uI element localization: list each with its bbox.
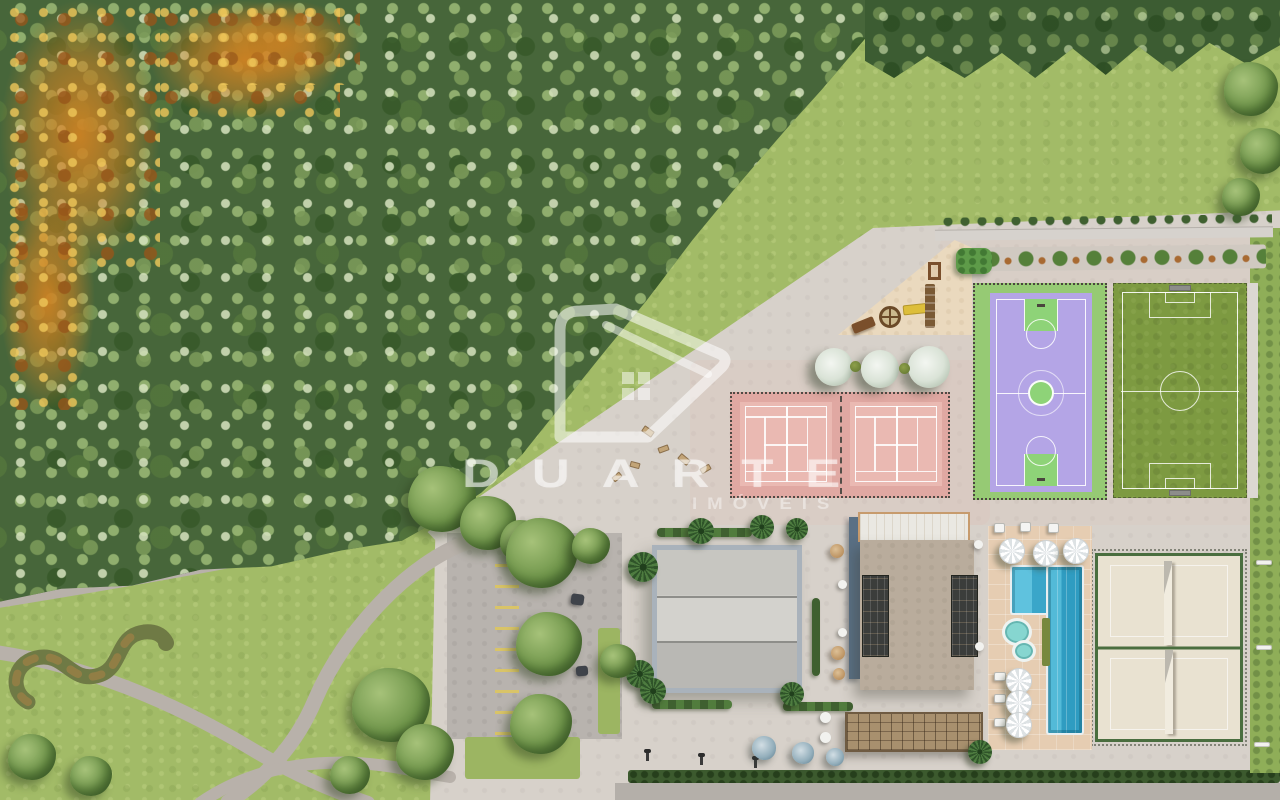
white-flowering-tree bbox=[861, 350, 899, 388]
sun-lounger bbox=[1048, 523, 1059, 533]
white-flowering-tree bbox=[815, 348, 853, 386]
playground-carousel bbox=[879, 306, 901, 328]
goal-box-top bbox=[1165, 292, 1195, 303]
kids-pool bbox=[1012, 640, 1036, 662]
sun-lounger bbox=[994, 694, 1006, 703]
tan-parasol bbox=[831, 646, 845, 660]
basketball-surface bbox=[990, 293, 1092, 492]
wood-pergola bbox=[845, 712, 983, 752]
sun-lounger bbox=[994, 718, 1006, 727]
divider-fence bbox=[840, 396, 842, 494]
pool-umbrella bbox=[1063, 538, 1089, 564]
palm-tree bbox=[640, 678, 666, 704]
pool-umbrella bbox=[1033, 540, 1059, 566]
palm-tree bbox=[628, 552, 658, 582]
beach-net-top bbox=[1164, 561, 1172, 645]
pool-arm bbox=[1010, 565, 1048, 615]
glass-pergola bbox=[862, 575, 889, 657]
autumn-trees-patch bbox=[210, 0, 360, 85]
hoop-bottom bbox=[1037, 478, 1045, 481]
palm-tree bbox=[786, 518, 808, 540]
ornamental-tree bbox=[752, 736, 776, 760]
net-line bbox=[896, 406, 898, 482]
playground-climber bbox=[956, 248, 992, 274]
palm-tree bbox=[780, 682, 804, 706]
autumn-trees-patch bbox=[0, 190, 95, 410]
tennis-court-left bbox=[740, 402, 832, 486]
aerial-render-canvas: DUARTE IMÓVEIS bbox=[0, 0, 1280, 800]
center-circle bbox=[1028, 380, 1054, 406]
bush bbox=[850, 361, 861, 372]
free-throw-arc-bottom bbox=[1026, 436, 1056, 466]
palm-tree bbox=[688, 518, 714, 544]
goal-top bbox=[1169, 285, 1191, 291]
court-divider bbox=[1098, 646, 1240, 649]
tan-parasol bbox=[830, 544, 844, 558]
tennis-court-right bbox=[850, 402, 942, 486]
basketball-court bbox=[973, 283, 1107, 500]
pool-mat bbox=[1042, 618, 1050, 666]
glass-pergola bbox=[951, 575, 978, 657]
garden-bed bbox=[948, 244, 1266, 271]
playground-swing-frame bbox=[928, 262, 941, 280]
palm-tree bbox=[968, 740, 992, 764]
tree bbox=[1240, 128, 1280, 174]
net-line bbox=[786, 406, 788, 482]
sun-lounger bbox=[994, 672, 1006, 681]
roof-seam bbox=[657, 596, 797, 598]
white-flowering-tree bbox=[908, 346, 950, 388]
patio-table bbox=[975, 642, 984, 651]
goal-bottom bbox=[1169, 490, 1191, 496]
beach-tennis-courts bbox=[1095, 553, 1243, 742]
ornamental-tree bbox=[792, 742, 814, 764]
patio-table bbox=[820, 712, 831, 723]
pool-umbrella bbox=[1006, 712, 1032, 738]
sun-lounger bbox=[994, 523, 1005, 533]
clubhouse-patio bbox=[858, 512, 970, 542]
tan-parasol bbox=[833, 668, 845, 680]
patio-table bbox=[838, 628, 847, 637]
beach-net-bottom bbox=[1165, 650, 1173, 734]
gym-building bbox=[652, 545, 802, 693]
hedge bbox=[652, 700, 732, 709]
pool-umbrella bbox=[999, 538, 1025, 564]
free-throw-arc-top bbox=[1026, 319, 1056, 349]
playground-tower bbox=[925, 284, 935, 328]
patio-table bbox=[820, 732, 831, 743]
swimming-pool bbox=[1046, 565, 1084, 735]
soccer-side-walkway bbox=[1248, 283, 1258, 498]
hoop-top bbox=[1037, 304, 1045, 307]
tennis-courts bbox=[730, 392, 950, 498]
patio-table bbox=[838, 580, 847, 589]
goal-box-bottom bbox=[1165, 478, 1195, 489]
ornamental-tree bbox=[826, 748, 844, 766]
roof-seam bbox=[657, 641, 797, 643]
center-circle bbox=[1160, 371, 1200, 411]
hedge bbox=[812, 598, 820, 676]
palm-tree bbox=[750, 515, 774, 539]
soccer-field bbox=[1113, 283, 1247, 498]
bush bbox=[899, 363, 910, 374]
patio-table bbox=[974, 540, 983, 549]
sun-lounger bbox=[1020, 522, 1031, 532]
